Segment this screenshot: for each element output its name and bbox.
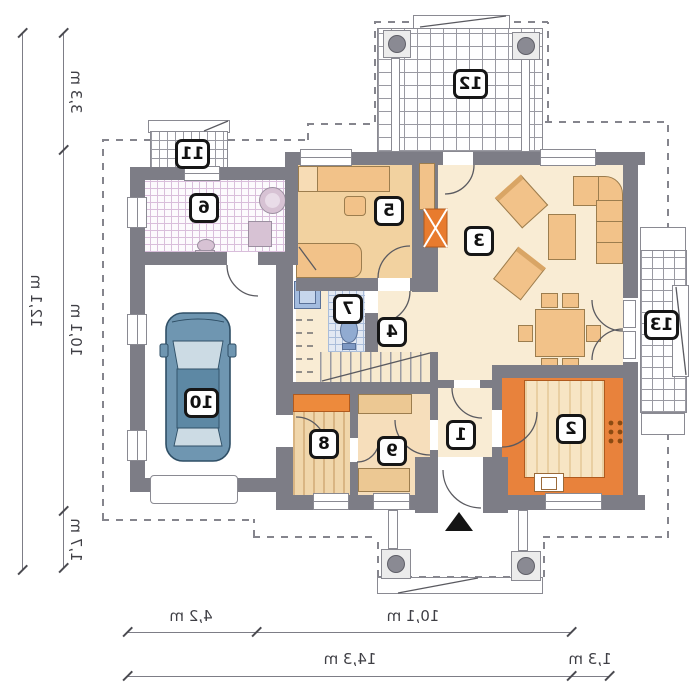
cabinet	[419, 163, 435, 210]
door-opening	[378, 278, 410, 291]
dim-line-bottom-total	[127, 676, 609, 677]
porch-column	[511, 551, 541, 581]
roof-outline-dash	[102, 519, 253, 521]
dim-line-left-total	[22, 33, 23, 570]
dim-label-left-total: 12,1 m	[28, 266, 44, 336]
door-opening	[454, 380, 480, 388]
bathtub-basin	[265, 193, 280, 208]
window	[127, 430, 147, 461]
wall	[492, 365, 638, 378]
chair	[344, 196, 366, 216]
room-label-4: 4	[377, 317, 407, 347]
terrace-12-step	[413, 15, 510, 29]
dim-label-left-main: 10,1 m	[68, 295, 84, 365]
terrace-12-column	[383, 30, 411, 58]
room-label-13: 13	[644, 310, 679, 340]
room-label-9: 9	[377, 436, 407, 466]
porch-column	[381, 549, 411, 579]
sofa-side	[596, 200, 623, 264]
wall	[276, 252, 293, 510]
terrace-outline-dash	[547, 22, 549, 122]
door-opening	[365, 291, 378, 313]
room-label-3: 3	[464, 226, 494, 256]
room-label-8: 8	[309, 429, 339, 459]
room-label-5: 5	[374, 196, 404, 226]
terrace-outline-dash	[374, 22, 376, 122]
porch-outline-dash	[377, 536, 379, 577]
shower-tray	[248, 221, 272, 247]
wall	[283, 382, 432, 394]
dining-chair	[541, 293, 558, 308]
room-label-6: 6	[189, 193, 219, 223]
entry-recess-floor	[438, 470, 483, 513]
door-opening	[430, 420, 438, 450]
dim-line-left-segments	[63, 33, 64, 568]
roof-outline-dash	[253, 519, 255, 537]
dim-line-bottom-segments	[127, 632, 571, 633]
column-post-icon	[388, 35, 406, 53]
terrace-12-column	[512, 32, 540, 60]
column-post-icon	[387, 555, 405, 573]
staircase	[320, 352, 432, 382]
room-label-7: 7	[333, 294, 363, 324]
roof-outline-dash	[253, 536, 377, 538]
window	[540, 149, 596, 166]
terrace-door-leaf	[623, 331, 636, 359]
dining-table	[535, 309, 585, 357]
washing-machine-base	[342, 343, 356, 350]
dim-label-bottom-side: 1,3 m	[555, 651, 625, 667]
window	[313, 493, 349, 510]
room-label-12: 12	[453, 69, 488, 99]
roof-outline-dash	[543, 536, 669, 538]
window	[373, 493, 410, 510]
room-label-11: 11	[175, 139, 210, 169]
room-label-1: 1	[446, 420, 476, 450]
terrace-12-edge-beam	[521, 58, 530, 152]
column-post-icon	[517, 557, 535, 575]
dim-label-bottom-total: 14,3 m	[315, 651, 385, 667]
dining-chair	[562, 293, 579, 308]
room-4-hall-floor	[412, 292, 437, 352]
dim-label-left-top: 3,3 m	[68, 57, 84, 127]
door-opening	[443, 152, 473, 165]
room-label-10: 10	[184, 388, 219, 418]
porch-outline-dash	[543, 536, 545, 577]
door-opening	[276, 415, 293, 447]
corridor-floor	[430, 365, 492, 380]
door-opening	[492, 410, 502, 447]
terrace-door-leaf	[623, 300, 636, 328]
dining-chair	[518, 325, 533, 342]
window	[545, 493, 602, 510]
window	[127, 314, 147, 345]
garage-door	[150, 475, 238, 504]
porch-post-base	[388, 510, 398, 549]
room-9-wardrobe	[358, 468, 410, 492]
bed-pillow	[298, 166, 318, 192]
room-label-2: 2	[556, 414, 586, 444]
bed	[296, 243, 362, 278]
terrace-12-edge-beam	[391, 58, 400, 152]
roof-outline-dash	[102, 139, 104, 520]
room-10-garage-floor	[145, 265, 276, 478]
room-8-counter	[293, 394, 350, 412]
wall	[430, 352, 438, 382]
terrace-13-step	[641, 413, 685, 435]
dining-chair	[586, 325, 601, 342]
coffee-table	[548, 214, 576, 260]
roof-outline-dash	[307, 123, 375, 125]
kitchen-sink-basin	[541, 477, 557, 490]
entrance-arrow-icon	[445, 512, 473, 531]
window	[300, 149, 352, 166]
floor-plan-canvas: 1 2 3 4 5 6 7 8 9 10 11 12 13 3,3 m 12,1…	[0, 0, 700, 696]
roof-outline-dash	[545, 121, 667, 123]
wall	[285, 165, 298, 265]
wall	[430, 380, 454, 388]
door-opening	[227, 252, 258, 265]
dim-label-bottom-garage: 4,2 m	[156, 608, 226, 624]
porch-post-base	[518, 510, 528, 551]
dim-label-left-bottom: 1,7 m	[68, 505, 84, 575]
door-opening	[350, 438, 358, 462]
terrace-13-bench	[640, 227, 686, 251]
column-post-icon	[517, 37, 535, 55]
roof-outline-dash	[307, 124, 309, 140]
dim-label-bottom-main: 10,1 m	[378, 608, 448, 624]
room-9-wardrobe	[358, 394, 412, 414]
window	[127, 197, 147, 228]
